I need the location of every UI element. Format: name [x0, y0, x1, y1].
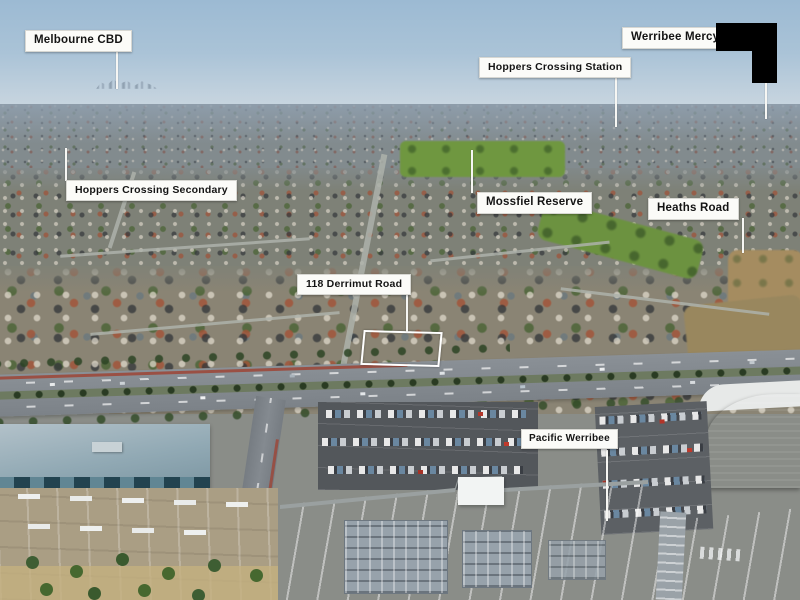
rooftop-hvac-units — [548, 540, 606, 580]
redaction-box — [752, 50, 777, 83]
retail-building-roof — [0, 424, 210, 490]
parked-cars-row — [599, 411, 701, 424]
rooftop-walkway — [656, 511, 687, 600]
leader-line-mossfiel-reserve — [471, 150, 473, 193]
rooftop-unit — [92, 442, 122, 452]
redaction-box — [716, 23, 777, 51]
sports-reserve-fields — [400, 141, 565, 177]
leader-line-pacific-werribee — [606, 450, 608, 521]
property-boundary-outline — [360, 330, 442, 367]
label-hoppers-crossing-station: Hoppers Crossing Station — [479, 57, 631, 78]
label-mossfiel-reserve: Mossfiel Reserve — [477, 192, 592, 214]
leader-line-property — [406, 294, 408, 332]
red-car — [659, 419, 664, 423]
aerial-photo: Melbourne CBD Werribee Mercy Hoppers Cro… — [0, 0, 800, 600]
carpark-left — [0, 488, 278, 600]
parked-cars-row — [328, 466, 523, 474]
rooftop-hvac-units — [462, 530, 532, 588]
label-heaths-road: Heaths Road — [648, 198, 739, 220]
label-melbourne-cbd: Melbourne CBD — [25, 30, 132, 52]
carpark-trees — [26, 556, 39, 569]
leader-line-hoppers-crossing-station — [615, 77, 617, 127]
carpark-centre — [318, 402, 538, 490]
leader-line-heaths-road — [742, 218, 744, 253]
sky — [0, 0, 800, 118]
parked-cars-row — [326, 410, 526, 418]
leader-line-werribee-mercy — [765, 82, 767, 119]
leader-line-hoppers-crossing-secondary — [65, 148, 67, 181]
rooftop-hvac-units — [344, 520, 448, 594]
parked-cars-row — [322, 438, 532, 446]
red-car — [478, 412, 483, 416]
label-property-address: 118 Derrimut Road — [297, 274, 411, 295]
rooftop-plant-room — [458, 477, 504, 505]
label-pacific-werribee: Pacific Werribee — [521, 429, 618, 449]
leader-line-melbourne-cbd — [116, 51, 118, 89]
carpark-canopies — [18, 494, 40, 499]
landscaped-verge — [0, 566, 278, 600]
label-hoppers-crossing-secondary: Hoppers Crossing Secondary — [66, 180, 237, 201]
